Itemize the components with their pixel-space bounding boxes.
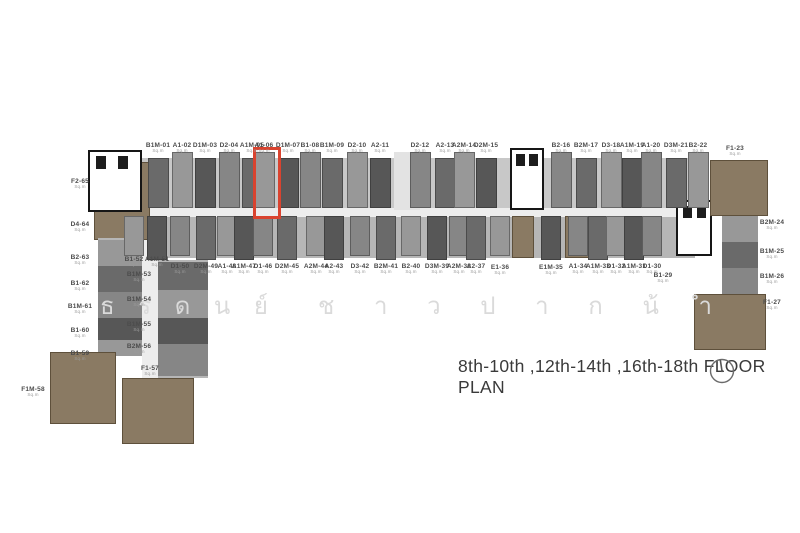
floor-plan-caption: 8th-10th ,12th-14th ,16th-18th FLOOR PLA…: [458, 356, 800, 398]
unit-label-D1-46[interactable]: D1-46Sq.m: [254, 263, 273, 275]
unit-area: Sq.m: [127, 303, 151, 308]
unit-label-F2-65[interactable]: F2-65Sq.m: [71, 178, 89, 190]
unit-area: Sq.m: [71, 261, 90, 266]
unit-label-D2M-45[interactable]: D2M-45Sq.m: [275, 263, 299, 275]
right-wing-unit: [722, 268, 758, 294]
unit-area: Sq.m: [664, 149, 688, 154]
unit-block-D3-42[interactable]: [350, 216, 370, 256]
unit-block-D2M-49[interactable]: [196, 216, 216, 260]
unit-label-A1M-19[interactable]: A1M-19Sq.m: [620, 142, 644, 154]
unit-block-D2-12[interactable]: [410, 152, 431, 208]
unit-area: Sq.m: [325, 270, 344, 275]
unit-area: Sq.m: [763, 306, 781, 311]
unit-label-F1-27[interactable]: F1-27Sq.m: [763, 299, 781, 311]
watermark-char: ย์: [254, 286, 268, 325]
unit-label-A2-37[interactable]: A2-37Sq.m: [467, 263, 486, 275]
unit-label-B2-63[interactable]: B2-63Sq.m: [71, 254, 90, 266]
unit-block-B1-08[interactable]: [300, 152, 321, 208]
unit-area: Sq.m: [411, 149, 430, 154]
unit-area: Sq.m: [254, 270, 273, 275]
unit-area: Sq.m: [574, 149, 598, 154]
unit-block-A2M-14[interactable]: [454, 152, 475, 208]
unit-label-A2-43[interactable]: A2-43Sq.m: [325, 263, 344, 275]
north-indicator-icon: [708, 355, 736, 385]
shaft: [529, 154, 538, 166]
watermark-char: ว: [427, 286, 440, 325]
unit-block-A1-20[interactable]: [641, 152, 662, 208]
unit-area: Sq.m: [689, 149, 708, 154]
inner-wing-unit: [158, 318, 208, 344]
unit-block-D1-32[interactable]: [606, 216, 626, 256]
watermark-char: ป: [480, 286, 495, 325]
unit-area: Sq.m: [193, 149, 217, 154]
unit-block-B1M-09[interactable]: [322, 158, 343, 208]
highlighted-unit-box[interactable]: [253, 147, 281, 219]
unit-label-D1M-07[interactable]: D1M-07Sq.m: [276, 142, 300, 154]
unit-area: Sq.m: [452, 149, 476, 154]
unit-area: Sq.m: [760, 255, 784, 260]
unit-block-E1-36[interactable]: [490, 216, 510, 256]
unit-label-B2-22[interactable]: B2-22Sq.m: [689, 142, 708, 154]
unit-label-A1-20[interactable]: A1-20Sq.m: [642, 142, 661, 154]
unit-block-A1M-19[interactable]: [622, 158, 643, 208]
unit-label-D3-42[interactable]: D3-42Sq.m: [351, 263, 370, 275]
unit-block-F1M-58[interactable]: [50, 352, 116, 424]
unit-block-D3-18[interactable]: [601, 152, 622, 208]
unit-label-B1M-54[interactable]: B1M-54Sq.m: [127, 296, 151, 308]
unit-area: Sq.m: [276, 149, 300, 154]
unit-block-B2-22[interactable]: [688, 152, 709, 208]
unit-area: Sq.m: [320, 149, 344, 154]
unit-block-F1-27[interactable]: [694, 294, 766, 350]
unit-area: Sq.m: [171, 270, 190, 275]
unit-area: Sq.m: [425, 270, 449, 275]
unit-area: Sq.m: [726, 152, 744, 157]
right-wing-unit: [722, 242, 758, 268]
right-wing-unit: [722, 216, 758, 242]
unit-block-D1-50[interactable]: [170, 216, 190, 256]
unit-block-D3M-21[interactable]: [666, 158, 687, 208]
unit-label-B2M-56[interactable]: B2M-56Sq.m: [127, 343, 151, 355]
shaft: [118, 156, 128, 169]
floor-plan-canvas: ธรดนย์ ชาวปากน้ำ B1M-01Sq.mA1-02Sq.mD1M-…: [0, 0, 800, 533]
unit-area: Sq.m: [374, 270, 398, 275]
unit-label-D4-64[interactable]: D4-64Sq.m: [71, 221, 90, 233]
unit-area: Sq.m: [301, 149, 320, 154]
watermark-char: น: [214, 286, 230, 325]
unit-label-B2M-24[interactable]: B2M-24Sq.m: [760, 219, 784, 231]
unit-label-B1M-61[interactable]: B1M-61Sq.m: [68, 303, 92, 315]
unit-block-A1-02[interactable]: [172, 152, 193, 208]
unit-area: Sq.m: [474, 149, 498, 154]
unit-label-D3M-39[interactable]: D3M-39Sq.m: [425, 263, 449, 275]
unit-block-D2M-45[interactable]: [277, 216, 297, 260]
unit-label-D1-50[interactable]: D1-50Sq.m: [171, 263, 190, 275]
unit-block-A2-11[interactable]: [370, 158, 391, 208]
unit-label-D3M-21[interactable]: D3M-21Sq.m: [664, 142, 688, 154]
watermark-char: า: [535, 286, 548, 325]
unit-label-D2M-49[interactable]: D2M-49Sq.m: [194, 263, 218, 275]
unit-lower-tan-a[interactable]: [512, 216, 534, 258]
unit-area: Sq.m: [371, 149, 389, 154]
unit-area: Sq.m: [642, 149, 661, 154]
inner-wing-unit: [158, 290, 208, 318]
unit-label-F1-23[interactable]: F1-23Sq.m: [726, 145, 744, 157]
unit-label-A1M-47[interactable]: A1M-47Sq.m: [232, 263, 256, 275]
unit-area: Sq.m: [127, 278, 151, 283]
watermark-char: า: [374, 286, 387, 325]
unit-area: Sq.m: [21, 393, 45, 398]
core-right: [676, 200, 712, 256]
unit-area: Sq.m: [71, 185, 89, 190]
unit-label-B1M-01[interactable]: B1M-01Sq.m: [146, 142, 170, 154]
unit-label-E1-36[interactable]: E1-36Sq.m: [491, 264, 509, 276]
unit-area: Sq.m: [125, 263, 144, 268]
watermark-char: ช: [318, 286, 334, 325]
unit-block-A1M-51[interactable]: [147, 216, 167, 260]
unit-area: Sq.m: [145, 263, 169, 268]
unit-label-D2-04[interactable]: D2-04Sq.m: [220, 142, 239, 154]
watermark-char: น้: [642, 286, 658, 325]
unit-area: Sq.m: [127, 350, 151, 355]
unit-label-A2-11[interactable]: A2-11Sq.m: [371, 142, 389, 154]
unit-block-D2-04[interactable]: [219, 152, 240, 208]
unit-block-D1M-07[interactable]: [278, 158, 299, 208]
unit-area: Sq.m: [654, 279, 673, 284]
unit-label-F1-57[interactable]: F1-57Sq.m: [141, 365, 159, 377]
unit-block-D2M-15[interactable]: [476, 158, 497, 208]
watermark-text: ชาวปากน้ำ: [318, 286, 712, 325]
unit-area: Sq.m: [620, 149, 644, 154]
unit-block-A1M-47[interactable]: [234, 216, 254, 260]
inner-wing-unit: [158, 344, 208, 376]
unit-area: Sq.m: [173, 149, 192, 154]
unit-area: Sq.m: [348, 149, 367, 154]
unit-label-B1-08[interactable]: B1-08Sq.m: [301, 142, 320, 154]
unit-block-B2-16[interactable]: [551, 152, 572, 208]
unit-label-B1M-09[interactable]: B1M-09Sq.m: [320, 142, 344, 154]
unit-area: Sq.m: [491, 271, 509, 276]
unit-area: Sq.m: [71, 334, 90, 339]
unit-block-A2-37[interactable]: [466, 216, 486, 260]
unit-block-D1M-03[interactable]: [195, 158, 216, 208]
unit-block-D2-10[interactable]: [347, 152, 368, 208]
unit-block-A1M-33[interactable]: [588, 216, 608, 260]
unit-label-B1-59[interactable]: B1-59Sq.m: [71, 350, 90, 362]
unit-label-B1M-55[interactable]: B1M-55Sq.m: [127, 321, 151, 333]
unit-area: Sq.m: [760, 226, 784, 231]
unit-block-D1-30[interactable]: [642, 216, 662, 256]
unit-area: Sq.m: [760, 280, 784, 285]
unit-block-D3M-39[interactable]: [427, 216, 447, 260]
unit-label-B1M-26[interactable]: B1M-26Sq.m: [760, 273, 784, 285]
unit-block-B2M-17[interactable]: [576, 158, 597, 208]
unit-label-A1M-51[interactable]: A1M-51Sq.m: [145, 256, 169, 268]
unit-area: Sq.m: [402, 270, 421, 275]
unit-area: Sq.m: [351, 270, 370, 275]
unit-area: Sq.m: [232, 270, 256, 275]
unit-block-B2-40[interactable]: [401, 216, 421, 256]
unit-label-B1M-53[interactable]: B1M-53Sq.m: [127, 271, 151, 283]
unit-label-A1-02[interactable]: A1-02Sq.m: [173, 142, 192, 154]
unit-label-F1M-58[interactable]: F1M-58Sq.m: [21, 386, 45, 398]
unit-label-E1M-35[interactable]: E1M-35Sq.m: [539, 264, 563, 276]
unit-area: Sq.m: [552, 149, 571, 154]
unit-block-A1M-31[interactable]: [624, 216, 644, 260]
shaft: [516, 154, 525, 166]
unit-label-B2M-17[interactable]: B2M-17Sq.m: [574, 142, 598, 154]
unit-label-B2-40[interactable]: B2-40Sq.m: [402, 263, 421, 275]
unit-label-D2-12[interactable]: D2-12Sq.m: [411, 142, 430, 154]
unit-label-B1M-25[interactable]: B1M-25Sq.m: [760, 248, 784, 260]
unit-block-A2M-44[interactable]: [306, 216, 326, 256]
unit-area: Sq.m: [68, 310, 92, 315]
unit-block-B2M-41[interactable]: [376, 216, 396, 260]
unit-label-A2M-14[interactable]: A2M-14Sq.m: [452, 142, 476, 154]
unit-label-A1-34[interactable]: A1-34Sq.m: [569, 263, 588, 275]
watermark-char: ก: [588, 286, 603, 325]
unit-area: Sq.m: [467, 270, 486, 275]
unit-label-B1-52[interactable]: B1-52Sq.m: [125, 256, 144, 268]
unit-block-A2-13[interactable]: [435, 158, 456, 208]
unit-area: Sq.m: [275, 270, 299, 275]
unit-area: Sq.m: [220, 149, 239, 154]
unit-area: Sq.m: [602, 149, 621, 154]
unit-label-A1-06[interactable]: A1-06Sq.m: [255, 142, 274, 154]
unit-label-D2M-15[interactable]: D2M-15Sq.m: [474, 142, 498, 154]
unit-label-B1-29[interactable]: B1-29Sq.m: [654, 272, 673, 284]
unit-block-A2-43[interactable]: [324, 216, 344, 260]
unit-area: Sq.m: [255, 149, 274, 154]
unit-area: Sq.m: [71, 228, 90, 233]
unit-label-B1-60[interactable]: B1-60Sq.m: [71, 327, 90, 339]
unit-block-E1M-35[interactable]: [541, 216, 561, 260]
unit-area: Sq.m: [194, 270, 218, 275]
unit-area: Sq.m: [141, 372, 159, 377]
unit-block-B1M-01[interactable]: [148, 158, 169, 208]
unit-block-B1-52[interactable]: [124, 216, 144, 256]
unit-label-B2M-41[interactable]: B2M-41Sq.m: [374, 263, 398, 275]
unit-block-D1-46[interactable]: [253, 216, 273, 256]
unit-area: Sq.m: [71, 357, 90, 362]
unit-label-D1M-03[interactable]: D1M-03Sq.m: [193, 142, 217, 154]
unit-area: Sq.m: [127, 328, 151, 333]
unit-label-D3-18[interactable]: D3-18Sq.m: [602, 142, 621, 154]
unit-label-B2-16[interactable]: B2-16Sq.m: [552, 142, 571, 154]
unit-area: Sq.m: [146, 149, 170, 154]
unit-block-F1-57[interactable]: [122, 378, 194, 444]
unit-area: Sq.m: [569, 270, 588, 275]
unit-area: Sq.m: [71, 287, 90, 292]
unit-label-B1-62[interactable]: B1-62Sq.m: [71, 280, 90, 292]
unit-area: Sq.m: [539, 271, 563, 276]
shaft: [96, 156, 106, 169]
unit-label-D2-10[interactable]: D2-10Sq.m: [348, 142, 367, 154]
unit-block-F1-23[interactable]: [710, 160, 768, 216]
unit-block-A1-34[interactable]: [568, 216, 588, 256]
